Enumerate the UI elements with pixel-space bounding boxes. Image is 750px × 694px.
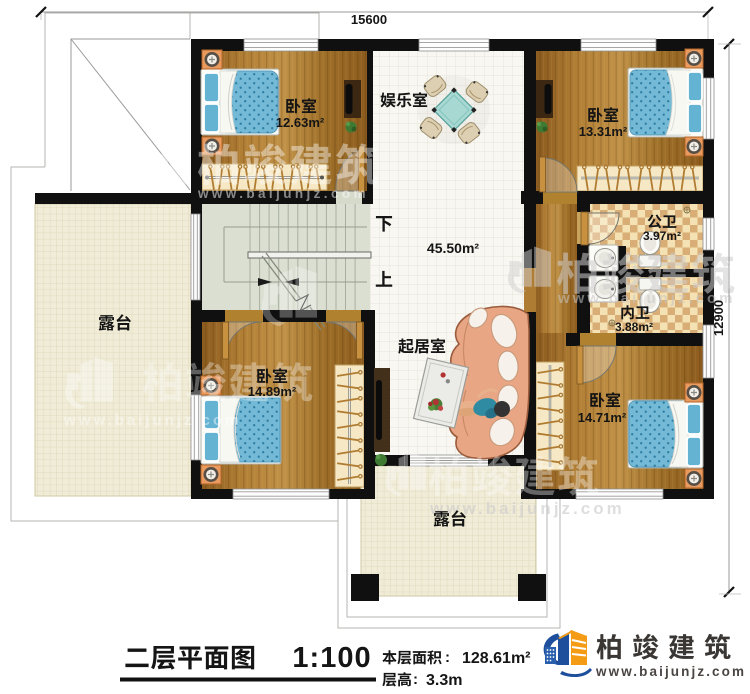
svg-text:www.baijunjz.com: www.baijunjz.com (429, 499, 625, 518)
svg-text:3.97m²: 3.97m² (643, 229, 681, 243)
svg-text:12900: 12900 (711, 300, 726, 336)
svg-text:www.baijunjz.com: www.baijunjz.com (595, 664, 746, 679)
svg-text:3.88m²: 3.88m² (615, 320, 653, 334)
svg-text:128.61m²: 128.61m² (462, 650, 531, 667)
svg-text::: : (413, 671, 418, 688)
svg-text:13.31m²: 13.31m² (579, 124, 628, 139)
svg-text:www.baijunjz.com: www.baijunjz.com (557, 290, 735, 307)
svg-text:12.63m²: 12.63m² (276, 115, 325, 130)
svg-text:14.71m²: 14.71m² (578, 410, 627, 425)
svg-text:14.89m²: 14.89m² (248, 384, 297, 399)
svg-text:45.50m²: 45.50m² (427, 240, 479, 256)
svg-text::: : (445, 649, 450, 666)
svg-text:www.baijunjz.com: www.baijunjz.com (197, 186, 369, 201)
svg-text:3.3m: 3.3m (426, 672, 462, 689)
svg-text:www.baijunjz.com: www.baijunjz.com (63, 412, 241, 429)
svg-text:1:100: 1:100 (292, 642, 371, 674)
svg-text:15600: 15600 (351, 12, 387, 27)
